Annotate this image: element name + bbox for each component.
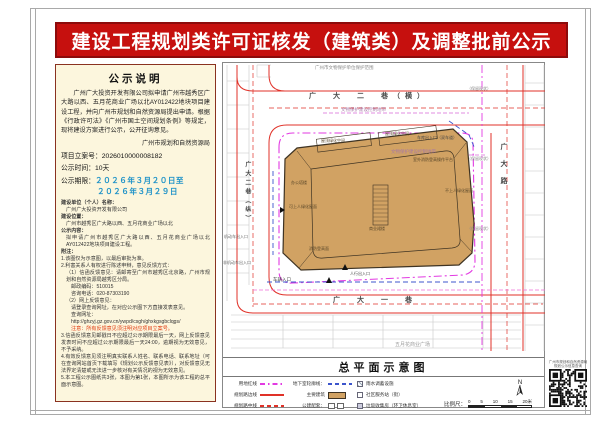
notice-heading: 公示说明 — [61, 71, 210, 86]
road-edge-swatch — [260, 394, 284, 396]
map-legend: 总平面示意图 用地红线 规划路边线 规划路中线 地下室轮廓线： 主要建筑 公建配… — [223, 357, 544, 407]
status-quo-label: （保留现状） — [467, 87, 491, 92]
heritage-control-label: 文物保护建设控制地带 — [391, 149, 436, 154]
notice-panel: 公示说明 广州广大投资开发有限公司拟申请广州市越秀区广大路以西、五月花商业广场以… — [55, 64, 216, 402]
garage-entrance-label: 车库出入口（双车道） — [417, 136, 457, 141]
notice-title-banner: 建设工程规划类许可证核发（建筑类）及调整批前公示 — [55, 22, 568, 58]
qr-caption-line2: 规划公示信息查询 — [548, 364, 588, 368]
duration-row: 公示时间：10天 — [61, 162, 210, 172]
period-from: ２０２６年３月２０日至 — [95, 176, 184, 185]
road-center-swatch — [260, 405, 284, 407]
field-label: 公示内容： — [61, 228, 210, 235]
scale-bar-segments — [468, 405, 532, 408]
legend-label: 垃圾收集房（环卫休息室） — [366, 403, 421, 409]
status-quo-label: （保留现状） — [467, 157, 491, 162]
nonmotor-entrance-label: 非机动车出入口 — [223, 261, 251, 266]
road-label-left: 广大二巷（纵） — [243, 161, 250, 224]
heritage-range-label: 广州市文物保护单位保护范围 — [315, 65, 374, 70]
frame-top — [30, 8, 591, 9]
legend-column-lines: 用地红线 规划路边线 规划路中线 — [227, 380, 284, 410]
note-item: 5.本工程公示图纸共3张，本图为第1张，本图所示为该工程的总平面示意图。 — [61, 375, 210, 389]
period-row: 公示期限：２０２６年３月２０日至 — [61, 175, 210, 186]
note-item: 查询网址： — [61, 312, 210, 319]
legend-label: 规划路中线 — [227, 403, 257, 409]
building-label: 商业裙楼 — [369, 227, 385, 232]
legend-column-facilities: 雨水调蓄设施 社区服务站（街） 垃圾收集房（环卫休息室） — [357, 380, 421, 410]
motor-entrance-label: 机动车出入口 — [224, 235, 248, 240]
pedestrian-entrance-label: 人行出入口 — [350, 272, 370, 277]
note-item: 4.有效反馈意见须注明真实联系人姓名、联系电话、联系地址（可在查询网站首页下载填… — [61, 354, 210, 375]
legend-label: 规划路边线 — [227, 392, 257, 398]
notice-details: 建设单位（个人）名称： 广州广大投资开发有限公司 建设位置： 广州市越秀区广大路… — [61, 200, 210, 389]
building-label: 室外消防登高操作平台 — [413, 158, 469, 163]
legend-column-fills: 地下室轮廓线： 主要建筑 公建配套： — [289, 380, 352, 410]
legend-label: 雨水调蓄设施 — [366, 381, 394, 387]
rain-facility-icon — [357, 381, 363, 387]
notice-intro: 广州广大投资开发有限公司拟申请广州市越秀区广大路以西、五月花商业广场以北AY01… — [61, 89, 210, 135]
legend-title: 总平面示意图 — [223, 358, 544, 377]
road-label-right: 广大路 — [499, 143, 507, 194]
garbage-room-icon — [357, 403, 363, 409]
building-label: 屋顶绿化空间 — [385, 132, 409, 137]
building-swatch — [328, 392, 346, 399]
frame-bottom-inner — [30, 410, 591, 411]
field-label: 建设单位（个人）名称： — [61, 200, 210, 207]
legend-label: 用地红线 — [227, 381, 257, 387]
status-quo-label: （保留现状） — [467, 227, 491, 232]
legend-label: 社区服务站（街） — [366, 392, 403, 398]
frame-right-outer — [590, 8, 591, 414]
period-label: 公示期限： — [61, 178, 95, 185]
community-station-icon — [357, 392, 363, 398]
basement-swatch — [328, 383, 352, 385]
scale-bar: 比例尺： 0 5 10 15 20米 — [444, 399, 532, 408]
frame-right-inner — [585, 8, 586, 414]
north-arrow-icon: N — [514, 378, 526, 396]
field-label: 建设位置： — [61, 214, 210, 221]
case-no-label: 项目立案号： — [61, 153, 102, 160]
field-value: 拟申请广州市越秀区广大路以西、五月花商业广场以北AY012422地块项目建设工程… — [61, 235, 210, 249]
building-label: 不上人绿化屋面 — [445, 189, 479, 194]
building-label: 消防登高面 — [309, 247, 329, 252]
scale-label: 比例尺： — [444, 400, 466, 408]
qr-block: 广州市规划和自然资源局 规划公示信息查询 — [548, 360, 588, 407]
frame-left-inner — [35, 8, 36, 414]
duration-value: 10天 — [95, 165, 109, 172]
legend-label: 公建配套： — [289, 403, 325, 409]
legend-label: 地下室轮廓线： — [289, 381, 325, 387]
road-label-top: 广 大 二 巷（横） — [309, 93, 429, 101]
building-label: 办公塔楼 — [291, 181, 307, 186]
qr-code — [549, 369, 587, 407]
note-item: （1）信函反馈意见：请邮寄至广州市越秀区北京路，广州市规划和自然资源局越秀区分局… — [61, 270, 210, 284]
heritage-control-label: 文物保护建设控制地带 — [341, 107, 386, 112]
field-value: 广州广大投资开发有限公司 — [61, 207, 210, 214]
road-label-bottom: 广 大 一 巷 — [333, 297, 417, 305]
redline-swatch — [260, 383, 284, 385]
case-no-value: 2026010000008182 — [102, 153, 162, 160]
legend-body: 用地红线 规划路边线 规划路中线 地下室轮廓线： 主要建筑 公建配套： 雨水调蓄… — [223, 377, 544, 410]
vehicle-entrance-label: 车辆入口 — [273, 277, 291, 282]
notice-authority: 广州市规划和自然资源局 — [61, 138, 210, 147]
field-value: 广州市越秀区广大路以西、五月花商业广场以北 — [61, 221, 210, 228]
building-label: 可上人绿化屋面 — [289, 205, 323, 210]
legend-column-scale: N 比例尺： 0 5 10 15 20米 — [444, 380, 540, 410]
building-label: 屋顶绿化空间 — [321, 139, 345, 144]
note-item: 3.信函反馈意见邮戳日不应超过公示期限最后一天，网上反馈意见发表时间不应超过公示… — [61, 333, 210, 354]
frame-left-outer — [30, 8, 31, 414]
frame-bottom-outer — [30, 414, 591, 415]
mall-label: 五月花商业广场 — [395, 343, 430, 349]
site-plan-map: 广 大 二 巷（横） 广大二巷（纵） 广大路 广 大 一 巷 广州市文物保护单位… — [222, 62, 545, 408]
legend-label: 主要建筑 — [289, 392, 325, 398]
duration-label: 公示时间： — [61, 165, 95, 172]
period-to: ２０２６年３月２９日 — [61, 186, 210, 197]
case-no-row: 项目立案号：2026010000008182 — [61, 150, 210, 160]
public-facility-swatch — [328, 403, 344, 409]
page-title: 建设工程规划类许可证核发（建筑类）及调整批前公示 — [71, 27, 551, 54]
